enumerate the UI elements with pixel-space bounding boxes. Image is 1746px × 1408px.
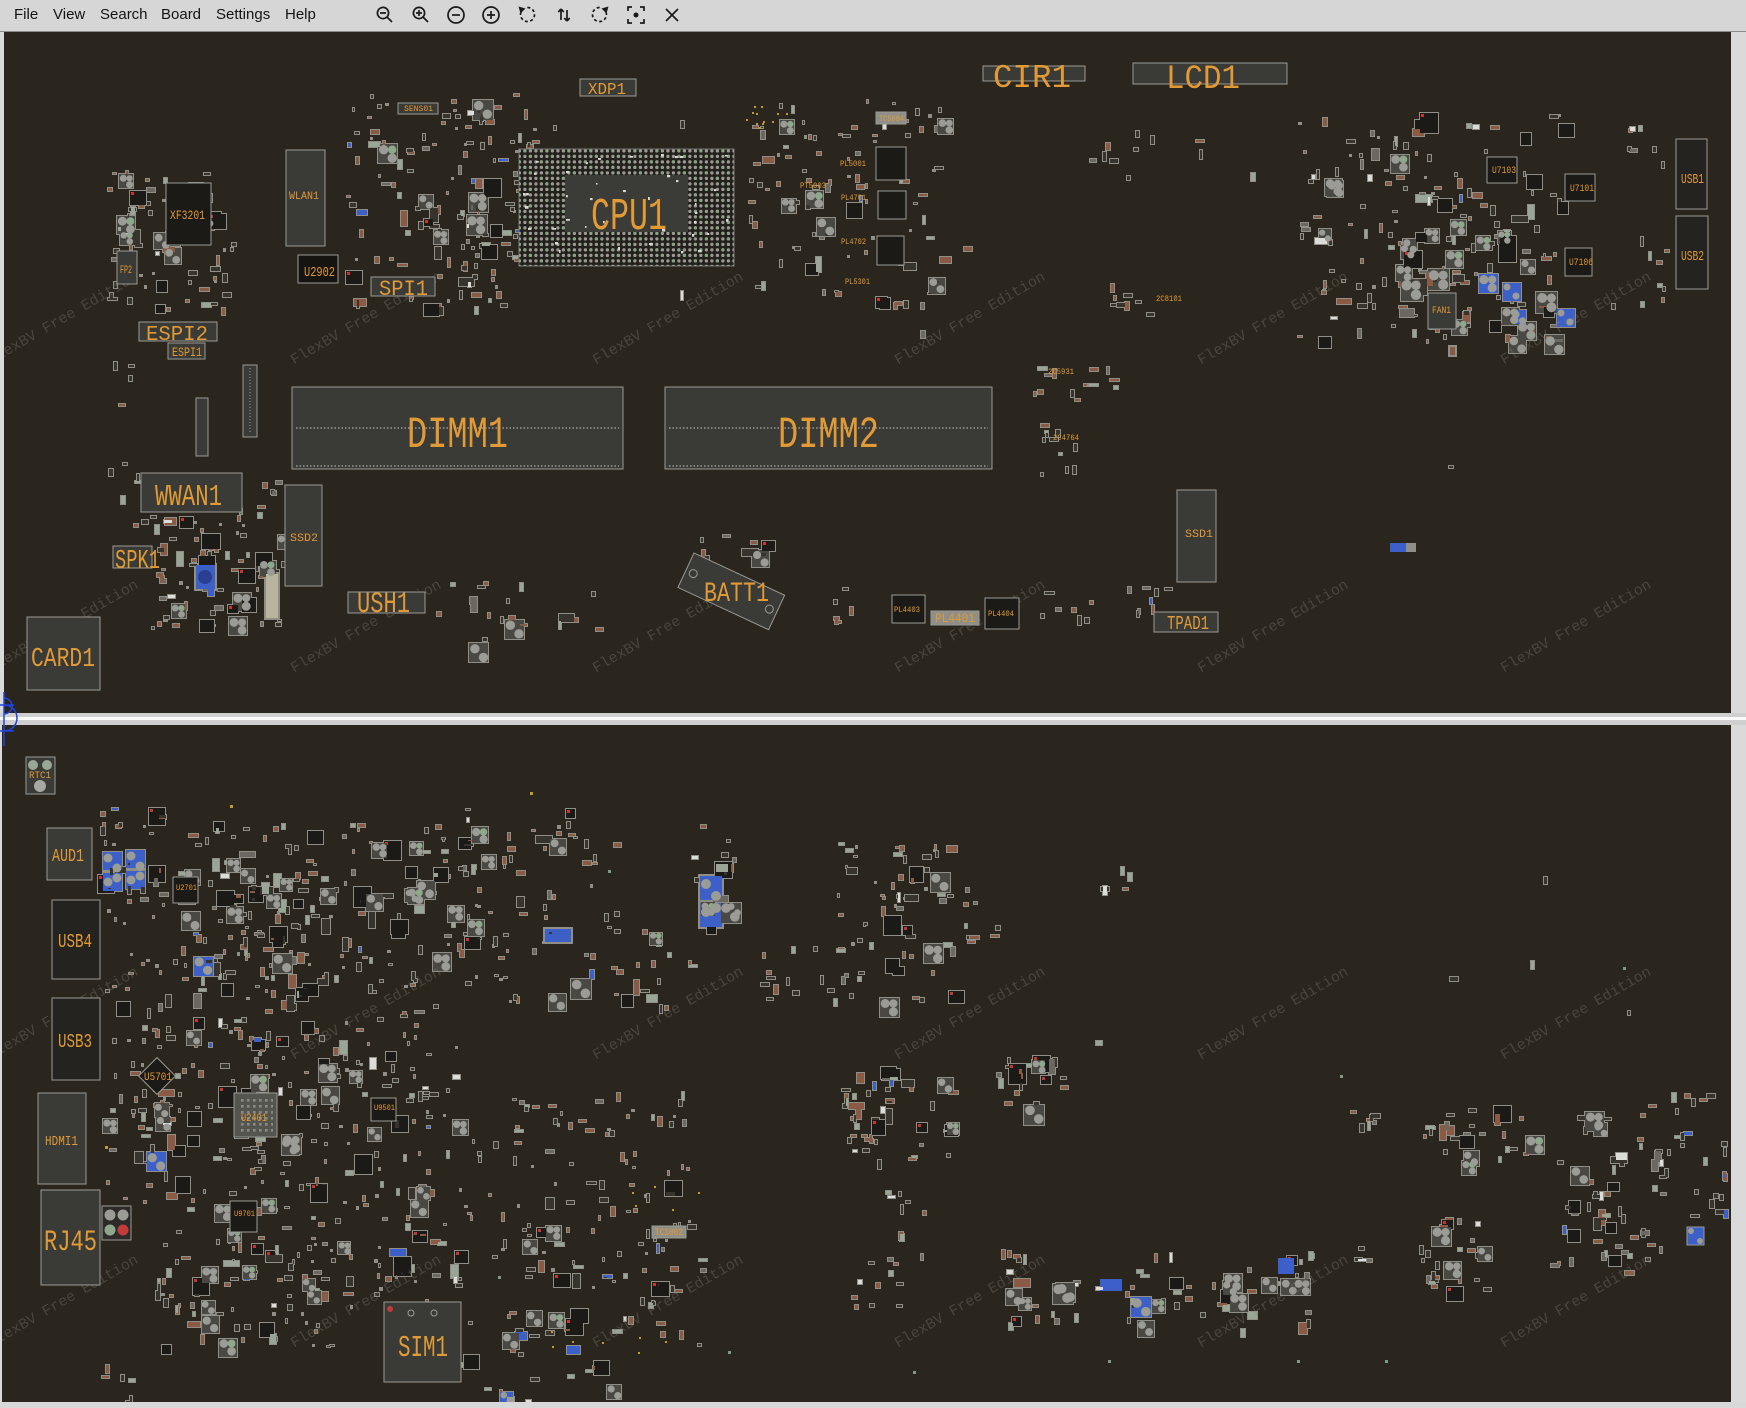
svg-text:PL5301: PL5301 [845, 278, 870, 287]
svg-text:XF3201: XF3201 [170, 209, 205, 223]
svg-text:U2701: U2701 [176, 884, 197, 893]
svg-text:U7101: U7101 [1570, 183, 1594, 194]
svg-text:BATT1: BATT1 [704, 579, 769, 610]
svg-text:ESPI1: ESPI1 [172, 346, 202, 360]
svg-text:TC1002: TC1002 [655, 1227, 683, 1238]
svg-text:RJ45: RJ45 [44, 1226, 97, 1259]
svg-text:TPAD1: TPAD1 [1167, 613, 1209, 635]
svg-text:FP2: FP2 [120, 265, 132, 277]
svg-text:PL4404: PL4404 [988, 610, 1014, 619]
svg-text:PT5003: PT5003 [800, 182, 826, 191]
svg-text:USB1: USB1 [1681, 172, 1704, 188]
svg-text:FAN1: FAN1 [1432, 305, 1451, 316]
svg-text:USB4: USB4 [58, 931, 92, 953]
svg-text:XDP1: XDP1 [588, 81, 626, 100]
svg-text:PL4701: PL4701 [841, 194, 866, 203]
svg-text:SIM1: SIM1 [398, 1332, 448, 1366]
svg-text:2C4764: 2C4764 [1053, 434, 1079, 443]
svg-text:LCD1: LCD1 [1166, 60, 1240, 99]
svg-text:HDMI1: HDMI1 [45, 1134, 78, 1150]
svg-text:TC5004: TC5004 [879, 115, 904, 124]
svg-text:2C5931: 2C5931 [1048, 368, 1074, 377]
svg-text:SPK1: SPK1 [115, 546, 160, 576]
svg-text:PL5001: PL5001 [840, 160, 866, 169]
svg-text:U9701: U9701 [234, 1210, 255, 1219]
svg-text:CARD1: CARD1 [31, 644, 95, 674]
svg-text:USH1: USH1 [357, 588, 410, 621]
svg-text:U2902: U2902 [304, 265, 335, 281]
svg-text:AUD1: AUD1 [52, 847, 84, 867]
svg-text:CIR1: CIR1 [993, 59, 1071, 97]
svg-text:WLAN1: WLAN1 [289, 191, 319, 203]
svg-text:DIMM1: DIMM1 [407, 411, 508, 461]
svg-text:USB3: USB3 [58, 1031, 92, 1053]
svg-text:PL4702: PL4702 [841, 238, 866, 247]
svg-text:DIMM2: DIMM2 [778, 411, 879, 461]
svg-text:U7106: U7106 [1569, 257, 1593, 268]
svg-text:U5701: U5701 [144, 1072, 172, 1084]
svg-text:PL4401: PL4401 [935, 612, 975, 626]
svg-text:USB2: USB2 [1681, 249, 1704, 265]
svg-text:PL4403: PL4403 [894, 606, 920, 615]
svg-text:2C8101: 2C8101 [1156, 295, 1182, 304]
svg-text:SSD1: SSD1 [1185, 529, 1213, 541]
svg-text:RTC1: RTC1 [29, 770, 51, 781]
svg-text:SENS01: SENS01 [404, 105, 433, 114]
svg-text:U2401: U2401 [241, 1113, 267, 1125]
svg-text:SPI1: SPI1 [379, 277, 428, 302]
svg-text:CPU1: CPU1 [591, 191, 667, 243]
svg-text:SSD2: SSD2 [290, 533, 318, 545]
svg-text:U7103: U7103 [1492, 165, 1516, 176]
svg-text:WWAN1: WWAN1 [155, 481, 222, 515]
svg-text:U9501: U9501 [374, 1104, 395, 1113]
